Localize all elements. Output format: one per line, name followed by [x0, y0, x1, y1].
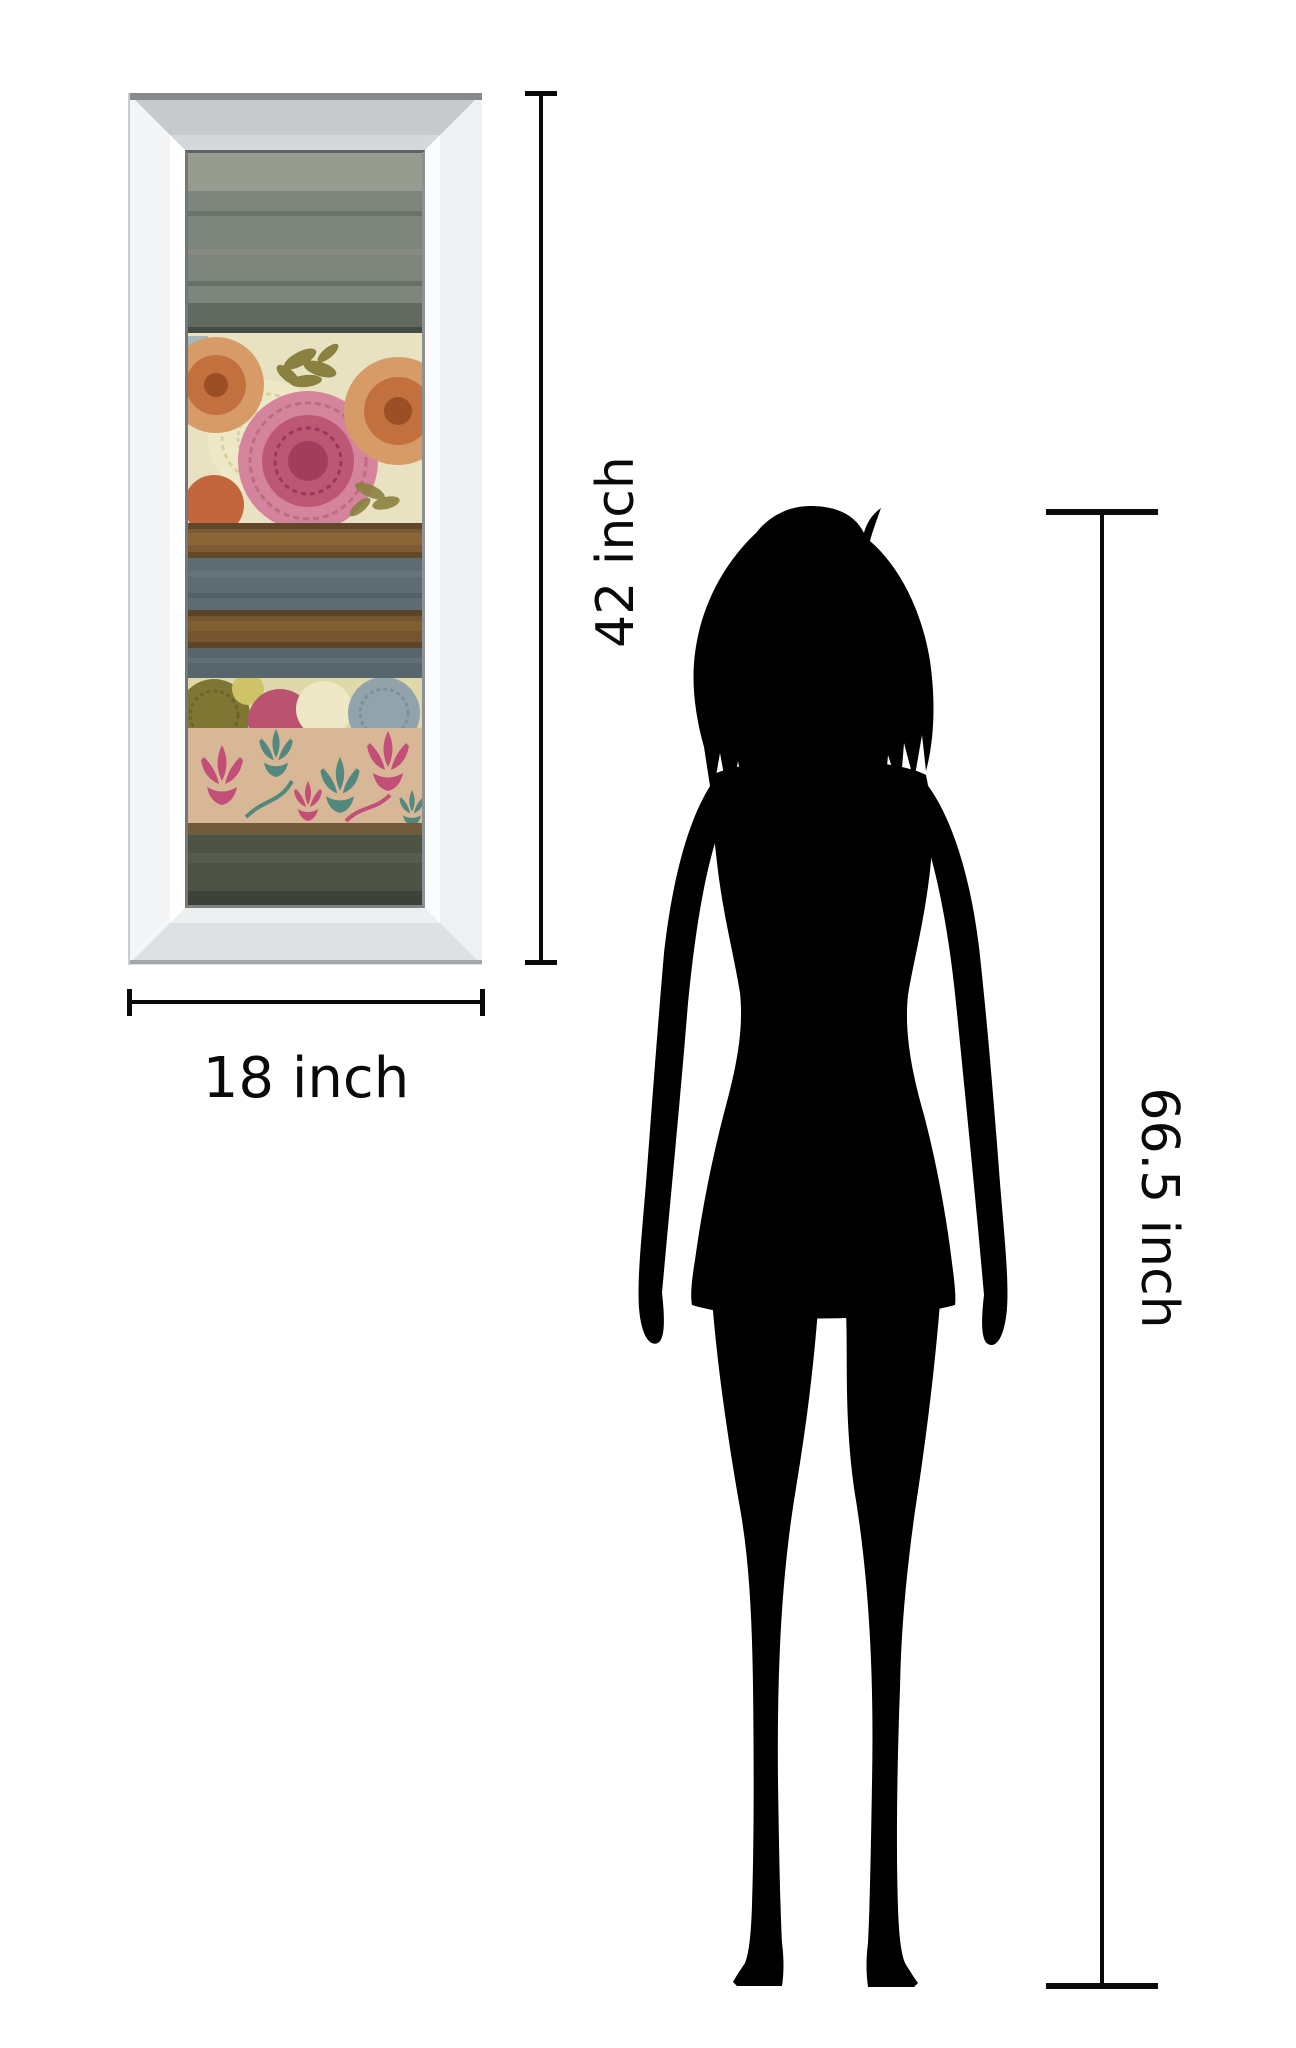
frame-height-tick-top — [525, 91, 557, 96]
frame-width-label: 18 inch — [203, 1051, 409, 1107]
person-height-line — [1100, 512, 1104, 1986]
art-band-slate — [188, 558, 422, 610]
stripe-textures — [188, 523, 422, 663]
flower-orange-mum-right-core — [384, 397, 412, 425]
frame-bevel — [170, 135, 440, 923]
silhouette-torso-dress — [691, 760, 955, 1319]
frame-width-line — [129, 1000, 483, 1004]
frame-height-line — [539, 93, 543, 965]
person-height-label: 66.5 inch — [1133, 1087, 1185, 1328]
frame-left-edge — [128, 93, 130, 965]
person-height-tick-top — [1046, 509, 1158, 515]
frame-inner-lip — [185, 150, 425, 908]
framed-artwork — [128, 93, 482, 965]
frame-width-tick-left — [127, 989, 132, 1016]
size-comparison-graphic: 42 inch 18 inch 66.5 inch — [0, 0, 1296, 2048]
frame-width-tick-right — [480, 989, 485, 1016]
silhouette-left-leg — [712, 1299, 818, 1986]
flower-orange-mum-left-core — [204, 373, 228, 397]
woman-silhouette — [600, 503, 1040, 1993]
frame-top-edge — [128, 93, 482, 100]
person-height-tick-bottom — [1046, 1983, 1158, 1989]
artwork-canvas — [188, 153, 422, 905]
frame-bottom-edge — [128, 960, 482, 964]
flower-pink-mum-core — [288, 441, 328, 481]
silhouette-right-leg — [846, 1303, 940, 1987]
frame-height-tick-bottom — [525, 960, 557, 965]
